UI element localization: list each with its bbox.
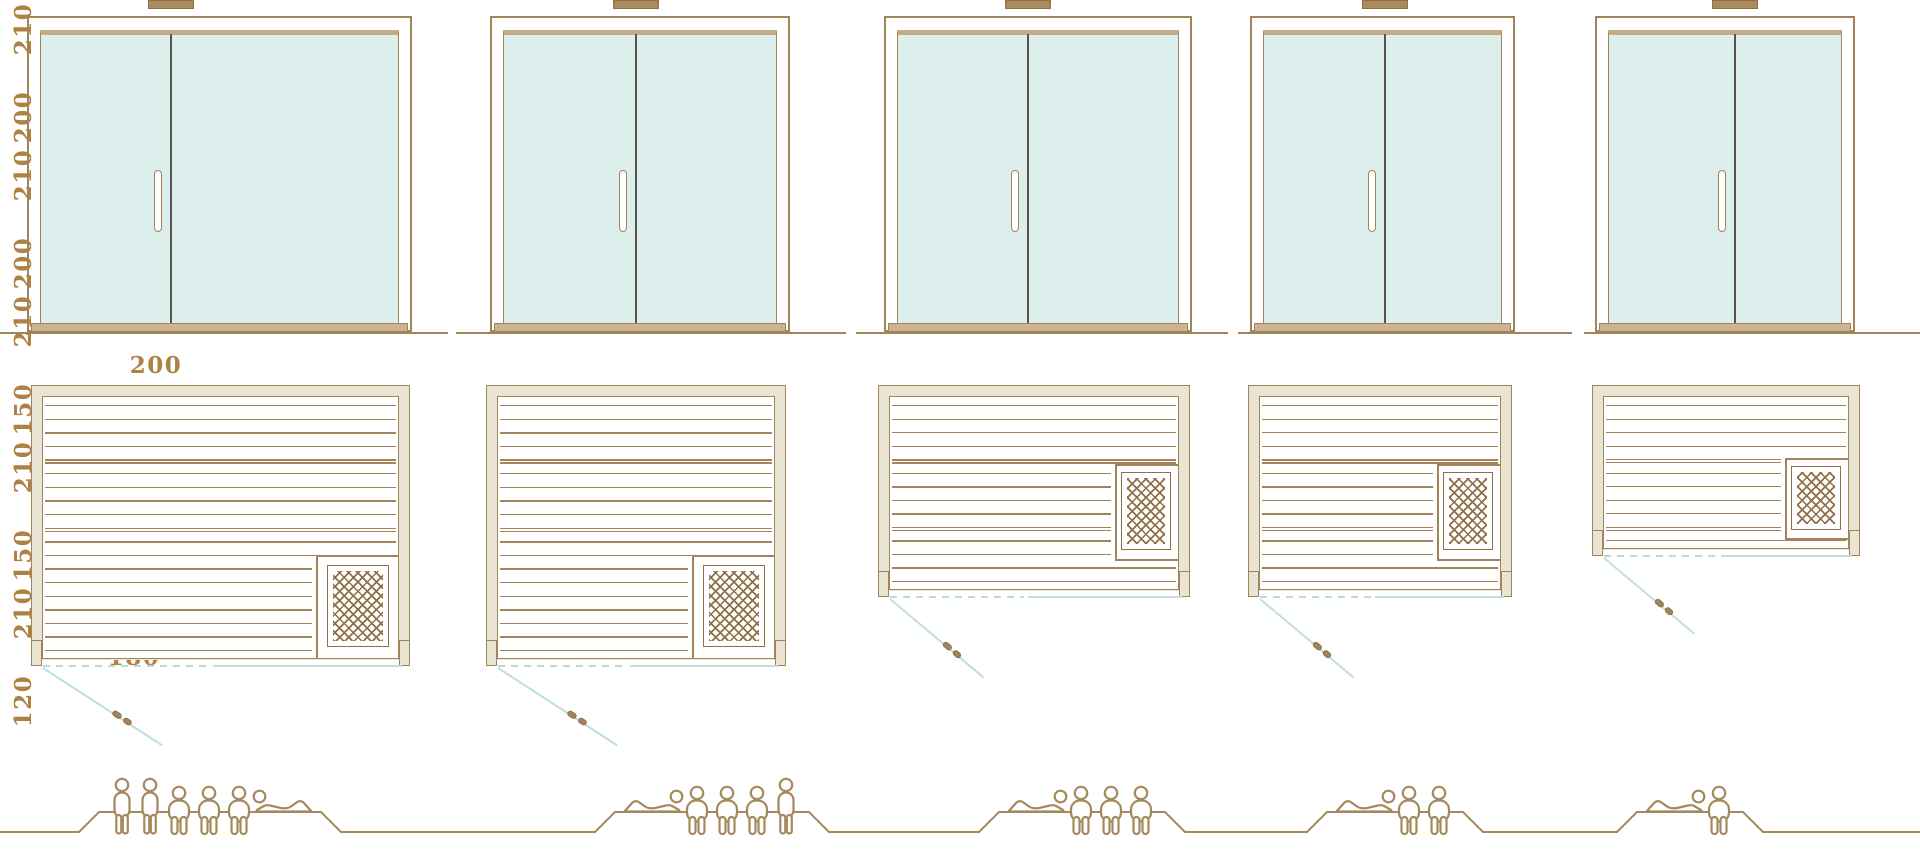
capacity-figure-lying	[251, 788, 315, 816]
door-swing-line	[42, 667, 162, 746]
bench-slat-line	[1606, 446, 1846, 447]
bench-slat-line	[45, 500, 396, 501]
bench-slat-line	[892, 567, 1176, 568]
capacity-figure-lying	[1643, 788, 1707, 816]
seated-person-icon	[1701, 785, 1737, 835]
bench-slat-line	[1606, 473, 1781, 474]
bench-slat-line	[1262, 486, 1433, 487]
bench-slat-line	[1606, 405, 1846, 406]
elevation-ground-line	[856, 332, 1228, 334]
elevation-ground-line	[0, 332, 448, 334]
depth-dimension-label: 120	[0, 678, 52, 724]
bench-slat-line	[500, 541, 772, 542]
bench-edge-line	[45, 462, 396, 463]
door-handle	[1011, 170, 1019, 232]
handle-half	[1653, 598, 1664, 609]
standing-person-icon	[769, 777, 803, 835]
bench-edge-line	[1606, 462, 1781, 463]
bench-slat-line	[892, 432, 1176, 433]
door-threshold	[31, 323, 408, 332]
bench-slat-line	[500, 419, 772, 420]
capacity-figure-lying	[621, 788, 685, 816]
bench-slat-line	[892, 419, 1176, 420]
heater-enclosure-line	[692, 555, 694, 659]
bench-slat-line	[1262, 581, 1498, 582]
height-dimension-label: 210	[0, 298, 52, 344]
bench-slat-line	[1262, 513, 1433, 514]
bench-slat-line	[1262, 446, 1498, 447]
lying-person-icon	[1005, 788, 1069, 816]
door-swing-line	[497, 667, 617, 746]
lying-person-icon	[1333, 788, 1397, 816]
bench-slat-line	[500, 446, 772, 447]
heater-enclosure-line	[692, 555, 775, 557]
bench-slat-line	[500, 636, 688, 637]
bench-slat-line	[892, 527, 1111, 528]
bench-slat-line	[892, 486, 1111, 487]
door-glass-panels	[897, 30, 1179, 324]
elevation-ground-line	[1238, 332, 1572, 334]
capacity-figure-standing	[769, 777, 803, 835]
capacity-figure-lying	[1005, 788, 1069, 816]
bench-slat-line	[1606, 459, 1781, 460]
bench-slat-line	[500, 487, 772, 488]
bench-slat-line	[45, 514, 396, 515]
door-swing-line	[889, 598, 984, 678]
capacity-figure-group	[1005, 785, 1159, 835]
bench-slat-line	[45, 473, 396, 474]
door-threshold	[494, 323, 786, 332]
heater-crosshatch	[333, 571, 383, 641]
handle-half	[941, 640, 952, 651]
bench-slat-line	[500, 405, 772, 406]
door-swing-line	[1603, 557, 1695, 635]
handle-half	[111, 710, 122, 720]
bench-slat-line	[1262, 540, 1433, 541]
bench-slat-line	[45, 432, 396, 433]
lying-person-icon	[1643, 788, 1707, 816]
bench-slat-line	[45, 487, 396, 488]
bench-slat-line	[45, 541, 396, 542]
bench-slat-line	[892, 459, 1176, 460]
bench-slat-line	[45, 582, 312, 583]
door-leaf-split-line	[1734, 34, 1736, 323]
bench-edge-line	[500, 462, 772, 463]
bench-slat-line	[1262, 405, 1498, 406]
capacity-figure-seated	[1421, 785, 1457, 835]
bench-slat-line	[500, 459, 772, 460]
bench-slat-line	[500, 609, 688, 610]
depth-dimension-label: 200	[0, 94, 52, 140]
bench-slat-line	[45, 596, 312, 597]
door-handle	[1718, 170, 1726, 232]
bench-slat-line	[45, 623, 312, 624]
door-swing-handle-icon	[566, 710, 588, 727]
bench-slat-line	[45, 650, 312, 651]
bench-slat-line	[45, 568, 312, 569]
capacity-figure-group	[105, 777, 315, 835]
front-glass-line	[630, 665, 778, 667]
bench-slat-line	[892, 540, 1111, 541]
bench-slat-line	[892, 581, 1176, 582]
door-opening-dashed-line	[43, 665, 206, 667]
door-swing-handle-icon	[941, 640, 962, 659]
bench-slat-line	[45, 636, 312, 637]
wall-post-left	[486, 640, 497, 666]
heater-crosshatch	[1797, 472, 1835, 524]
bench-slat-line	[500, 528, 772, 529]
bench-slat-line	[892, 446, 1176, 447]
heater-enclosure-line	[316, 555, 399, 557]
front-glass-line	[1028, 596, 1182, 598]
wall-post-left	[1248, 571, 1259, 597]
door-swing-handle-icon	[1311, 640, 1332, 659]
bench-slat-line	[1262, 432, 1498, 433]
roof-vent-cap	[613, 0, 659, 9]
elevation-ground-line	[1584, 332, 1920, 334]
door-leaf-split-line	[1027, 34, 1029, 323]
bench-edge-line	[892, 530, 1111, 531]
heater-enclosure-line	[1437, 464, 1501, 466]
heater-enclosure-line	[1785, 458, 1787, 538]
lying-person-icon	[251, 788, 315, 816]
height-dimension-label: 210	[0, 444, 52, 490]
door-opening-dashed-line	[1260, 596, 1374, 598]
heater-crosshatch	[1127, 478, 1165, 544]
door-handle	[619, 170, 627, 232]
bench-slat-line	[500, 500, 772, 501]
wall-post-right	[399, 640, 410, 666]
door-leaf-split-line	[635, 34, 637, 323]
heater-enclosure-line	[1785, 538, 1849, 540]
bench-slat-line	[1606, 527, 1781, 528]
wall-post-right	[1849, 530, 1860, 556]
sauna-size-diagram: 210250200 210200200	[0, 0, 1920, 856]
bench-slat-line	[1606, 419, 1846, 420]
door-swing-line	[1259, 598, 1354, 678]
bench-slat-line	[1262, 567, 1498, 568]
door-glass-panels	[503, 30, 777, 324]
door-threshold	[888, 323, 1188, 332]
wall-post-right	[1501, 571, 1512, 597]
wall-post-right	[775, 640, 786, 666]
bench-edge-line	[1262, 530, 1433, 531]
door-leaf-split-line	[1384, 34, 1386, 323]
bench-edge-line	[45, 531, 396, 532]
bench-slat-line	[500, 582, 688, 583]
bench-slat-line	[1606, 432, 1846, 433]
door-opening-dashed-line	[890, 596, 1024, 598]
bench-slat-line	[1606, 540, 1846, 541]
bench-slat-line	[1606, 486, 1781, 487]
heater-enclosure-line	[1115, 559, 1179, 561]
heater-enclosure-line	[316, 555, 318, 659]
bench-slat-line	[1262, 459, 1498, 460]
bench-slat-line	[892, 500, 1111, 501]
height-dimension-label: 210	[0, 152, 52, 198]
bench-edge-line	[500, 531, 772, 532]
bench-slat-line	[1262, 419, 1498, 420]
heater-crosshatch	[1449, 478, 1487, 544]
bench-slat-line	[892, 554, 1111, 555]
width-dimension-label: 200	[0, 350, 312, 380]
door-glass-panels	[1263, 30, 1502, 324]
heater-crosshatch	[709, 571, 759, 641]
capacity-figure-lying	[1333, 788, 1397, 816]
bench-slat-line	[500, 568, 688, 569]
bench-slat-line	[892, 513, 1111, 514]
heater-enclosure-line	[1115, 464, 1117, 559]
bench-slat-line	[500, 432, 772, 433]
bench-slat-line	[500, 596, 688, 597]
wall-post-left	[1592, 530, 1603, 556]
front-glass-line	[213, 665, 402, 667]
capacity-figure-seated	[1701, 785, 1737, 835]
capacity-figure-group	[1333, 785, 1457, 835]
seated-person-icon	[1123, 785, 1159, 835]
bench-slat-line	[45, 419, 396, 420]
front-glass-line	[1721, 555, 1852, 557]
depth-dimension-label: 200	[0, 240, 52, 286]
bench-slat-line	[1606, 513, 1781, 514]
bench-slat-line	[45, 459, 396, 460]
capacity-figure-group	[621, 777, 803, 835]
roof-vent-cap	[1362, 0, 1408, 9]
height-dimension-label: 210	[0, 6, 52, 52]
bench-slat-line	[500, 650, 688, 651]
wall-post-left	[31, 640, 42, 666]
bench-edge-line	[1606, 530, 1781, 531]
bench-slat-line	[1262, 554, 1433, 555]
bench-slat-line	[1606, 500, 1781, 501]
bench-slat-line	[892, 405, 1176, 406]
bench-slat-line	[1262, 473, 1433, 474]
bench-slat-line	[1262, 527, 1433, 528]
heater-enclosure-line	[1785, 458, 1849, 460]
door-swing-handle-icon	[111, 710, 133, 727]
depth-dimension-label: 150	[0, 386, 52, 432]
heater-enclosure-line	[1115, 464, 1179, 466]
door-handle	[1368, 170, 1376, 232]
bench-slat-line	[45, 446, 396, 447]
bench-slat-line	[500, 623, 688, 624]
door-opening-dashed-line	[498, 665, 627, 667]
depth-dimension-label: 150	[0, 532, 52, 578]
bench-slat-line	[45, 405, 396, 406]
wall-post-right	[1179, 571, 1190, 597]
bench-slat-line	[500, 473, 772, 474]
door-leaf-split-line	[170, 34, 172, 323]
seated-person-icon	[1421, 785, 1457, 835]
door-swing-handle-icon	[1653, 598, 1674, 617]
bench-slat-line	[500, 514, 772, 515]
door-handle	[154, 170, 162, 232]
roof-vent-cap	[1712, 0, 1758, 9]
capacity-figure-group	[1643, 785, 1737, 835]
door-opening-dashed-line	[1604, 555, 1719, 557]
handle-half	[566, 710, 577, 720]
door-threshold	[1254, 323, 1511, 332]
lying-person-icon	[621, 788, 685, 816]
roof-vent-cap	[1005, 0, 1051, 9]
front-glass-line	[1375, 596, 1504, 598]
bench-slat-line	[45, 528, 396, 529]
roof-vent-cap	[148, 0, 194, 9]
bench-slat-line	[892, 473, 1111, 474]
handle-half	[1311, 640, 1322, 651]
elevation-ground-line	[456, 332, 846, 334]
heater-enclosure-line	[1437, 559, 1501, 561]
wall-post-left	[878, 571, 889, 597]
door-threshold	[1599, 323, 1851, 332]
height-dimension-label: 210	[0, 590, 52, 636]
heater-enclosure-line	[1437, 464, 1439, 559]
bench-slat-line	[45, 609, 312, 610]
door-glass-panels	[40, 30, 399, 324]
bench-slat-line	[1262, 500, 1433, 501]
capacity-figure-seated	[1123, 785, 1159, 835]
